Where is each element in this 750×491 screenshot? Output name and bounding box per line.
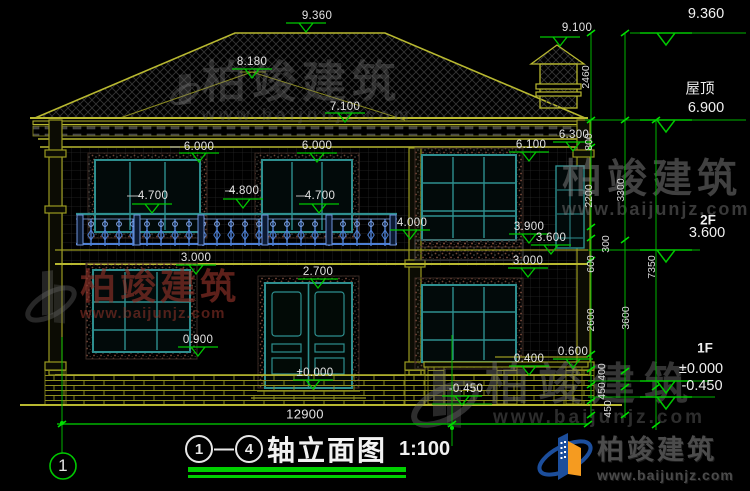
elev-label-4000: 4.000	[397, 217, 427, 229]
panel-roof-elev: 6.900	[688, 100, 724, 116]
elev-label-chimney: 9.100	[562, 22, 592, 34]
dim-3300: 3300	[615, 178, 627, 201]
elev-label-6000-center: 6.000	[302, 140, 332, 152]
brand-logo-icon	[533, 424, 597, 486]
elev-label-0900: 0.900	[183, 334, 213, 346]
panel-2f-elev: 3.600	[689, 225, 725, 241]
drawing-title: 1 — 4 轴立面图 1:100	[185, 429, 450, 469]
elev-label-ridge: 9.360	[302, 10, 332, 22]
panel-elev-9360: 9.360	[688, 6, 724, 22]
right-panel-markers	[640, 33, 692, 409]
dim-2200: 2200	[583, 184, 595, 207]
elev-label-4700-center: 4.700	[305, 190, 335, 202]
title-axis-start-bubble: 1	[185, 435, 213, 463]
brand-url: www.baijunjz.com	[597, 467, 734, 483]
elev-label-2700: 2.700	[303, 266, 333, 278]
elev-label-4800: 4.800	[229, 185, 259, 197]
elev-label-3000-right: 3.000	[513, 255, 543, 267]
dim-label-12900: 12900	[286, 407, 324, 422]
elev-label-8180: 8.180	[237, 56, 267, 68]
title-scale: 1:100	[399, 438, 450, 461]
panel-1f-name: 1F	[697, 341, 713, 356]
panel-roof-name: 屋顶	[686, 78, 715, 99]
dim-2600: 2600	[585, 308, 597, 331]
dim-450a: 450	[596, 382, 608, 400]
elev-label-6100: 6.100	[516, 139, 546, 151]
dim-ticks	[58, 30, 660, 428]
elevation-markers	[132, 23, 593, 405]
dim-400: 400	[596, 363, 608, 381]
title-axis-end-bubble: 4	[235, 435, 263, 463]
elev-label-0000: ±0.000	[297, 367, 334, 379]
brand-name: 柏竣建筑	[597, 428, 734, 467]
elev-label-0400: 0.400	[514, 353, 544, 365]
brand-logo: 柏竣建筑 www.baijunjz.com	[533, 424, 734, 486]
dim-7350: 7350	[646, 255, 658, 278]
title-dash: —	[214, 438, 234, 461]
elev-label-4700-left: 4.700	[138, 190, 168, 202]
title-underline-thin	[188, 475, 406, 478]
dim-450b: 450	[602, 400, 614, 418]
dimension-linework	[0, 0, 750, 491]
elev-label-3600: 3.600	[536, 232, 566, 244]
title-underline-thick	[188, 467, 406, 472]
elev-label-neg0450: -0.450	[449, 383, 483, 395]
dim-300: 300	[600, 235, 612, 253]
level-lines	[57, 33, 746, 453]
title-text: 轴立面图	[267, 429, 387, 469]
panel-1f-elev: ±0.000	[679, 361, 723, 377]
cad-elevation-canvas: 柏竣建筑 www.baijunjz.com 柏竣建筑 www.baijunjz.…	[0, 0, 750, 491]
axis-bubble-number: 1	[58, 456, 68, 476]
elev-label-6000-left: 6.000	[184, 141, 214, 153]
elev-label-7100: 7.100	[330, 101, 360, 113]
elev-label-3000-left: 3.000	[181, 252, 211, 264]
elev-label-0600: 0.600	[558, 346, 588, 358]
dim-2460: 2460	[580, 65, 592, 88]
dim-600: 600	[585, 255, 597, 273]
panel-1f-neg-elev: -0.450	[681, 378, 722, 394]
dim-3600: 3600	[620, 306, 632, 329]
dim-800: 800	[583, 133, 595, 151]
